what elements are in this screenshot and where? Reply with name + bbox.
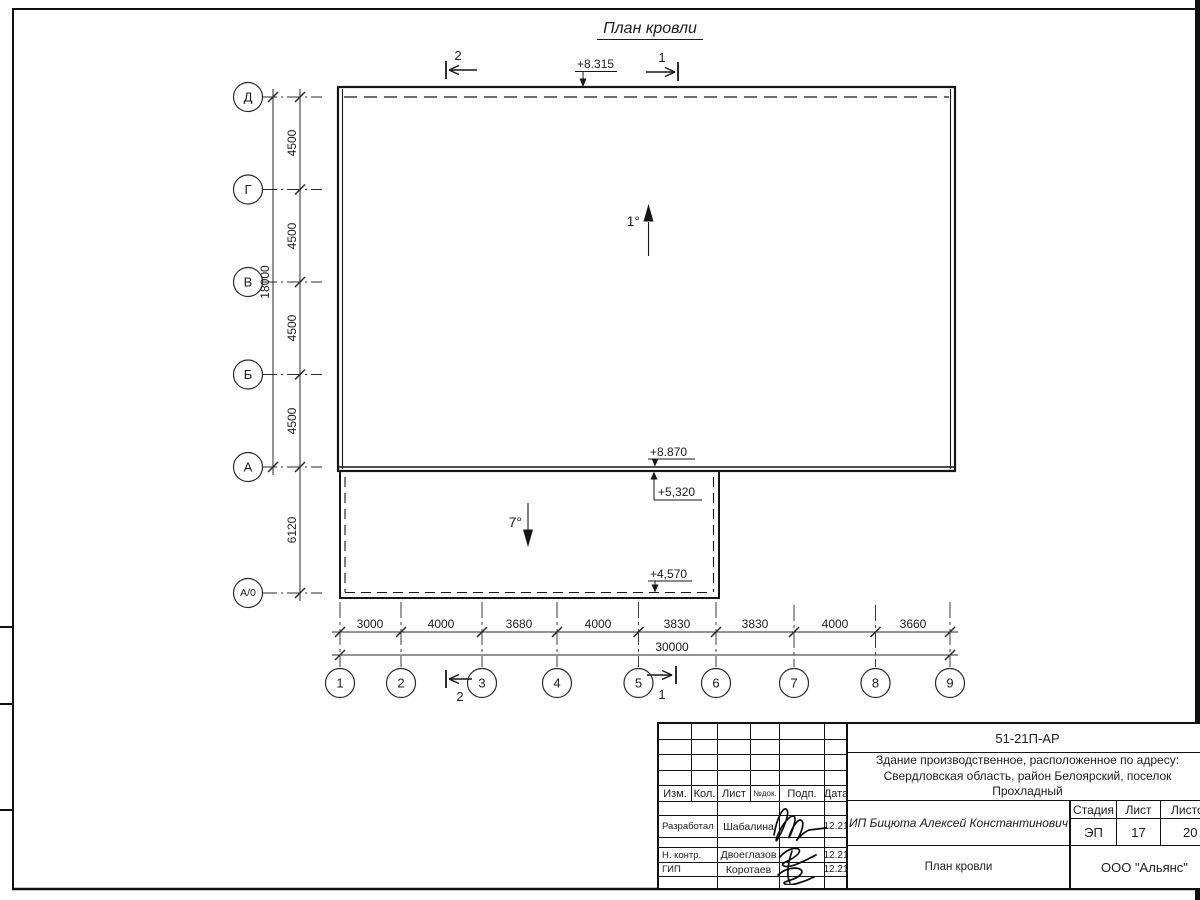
col-header-ndok: №док.: [751, 786, 780, 802]
axis-label: А/0: [240, 587, 256, 599]
stage-value: ЭП: [1069, 818, 1117, 846]
role-gip: ГИП: [659, 863, 718, 877]
sheet-title: План кровли: [846, 845, 1070, 889]
sheets-label: Листов: [1160, 800, 1200, 819]
axis-label: 5: [635, 676, 642, 691]
elevation-annex-top: +5,320: [651, 472, 703, 501]
dim-label: 3660: [900, 617, 927, 631]
slope-value: 7°: [509, 514, 522, 530]
dim-label: 4500: [285, 129, 299, 156]
stage-label: Стадия: [1069, 800, 1117, 819]
dim-label: 3830: [742, 617, 769, 631]
section-mark-2-top: 2: [446, 48, 477, 79]
axis-label: 2: [397, 676, 404, 691]
name-gip: Коротаев: [718, 863, 780, 877]
section-number: 2: [456, 689, 463, 704]
company-name: ООО "Альянс": [1069, 845, 1200, 889]
page-title-text: План кровли: [597, 20, 703, 40]
dim-label: 3830: [664, 617, 691, 631]
axis-label: А: [244, 460, 253, 475]
extension-lines: [340, 602, 950, 667]
elevation-parapet: +8.870: [648, 445, 695, 467]
elevation-marks: +8.315 +8.870 +5,320 +4,570: [575, 57, 702, 593]
doc-code: 51-21П-АР: [846, 722, 1200, 753]
axis-label: 8: [872, 676, 879, 691]
dim-label: 3680: [506, 617, 533, 631]
axis-label: 1: [336, 676, 343, 691]
axis-label: Г: [244, 182, 251, 197]
dim-label-total-height: 18000: [258, 265, 272, 299]
role-ncontrol: Н. контр.: [659, 848, 718, 863]
col-header-podp: Подп.: [780, 786, 825, 802]
sheet-number: 17: [1116, 818, 1161, 846]
slope-arrow-annex: 7°: [509, 503, 533, 547]
axis-grid-bottom: 1 2 3 4 5 6 7 8 9: [326, 669, 965, 698]
section-marks: 2 1 2 1: [446, 48, 678, 704]
axis-grid-left: Д Г В Б А А/0: [234, 83, 323, 608]
sheets-total: 20: [1160, 818, 1200, 846]
role-developer: Разработал: [659, 816, 718, 838]
dim-label: 4000: [585, 617, 612, 631]
signature-cell-gip: [780, 863, 825, 877]
sheet-label: Лист: [1116, 800, 1161, 819]
elevation-value: +4,570: [650, 567, 687, 581]
page-title: План кровли: [540, 20, 760, 38]
axis-label: 3: [478, 676, 485, 691]
elevation-value: +8.315: [577, 57, 614, 71]
dimensions-bottom: 3000 4000 3680 4000 3830 3830 4000 3660 …: [332, 602, 958, 667]
dimensions-left: 18000 4500 4500 4500 4500 6120: [258, 89, 305, 601]
axis-label: 9: [946, 676, 953, 691]
main-roof-outline: [338, 87, 955, 471]
slope-arrow-main: 1°: [627, 204, 654, 256]
elevation-value: +8.870: [650, 445, 687, 459]
client-name: ИП Бицюта Алексей Константинович: [846, 800, 1070, 846]
section-mark-1-top: 1: [646, 50, 678, 81]
drawing-sheet: Д Г В Б А А/0 18000 4500 4500 4500 4500 …: [0, 0, 1200, 900]
axis-label: В: [244, 275, 253, 290]
signature-cell-ncontrol: [780, 848, 825, 863]
dim-label: 4000: [428, 617, 455, 631]
dim-label: 4500: [285, 407, 299, 434]
dim-label-annex: 6120: [285, 516, 299, 543]
axis-label: 6: [712, 676, 719, 691]
elevation-main-roof: +8.315: [575, 57, 617, 87]
signature-cell-developer: [780, 816, 825, 838]
dim-label: 4500: [285, 314, 299, 341]
axis-label: Б: [244, 367, 253, 382]
date-ncontrol: 12.21: [825, 848, 848, 863]
slope-value: 1°: [627, 213, 640, 229]
col-header-izm: Изм.: [659, 786, 692, 802]
name-developer: Шабалина: [718, 816, 780, 838]
titleblock-revision-grid: Изм. Кол. Лист №док. Подп. Дата Разработ…: [657, 722, 848, 889]
object-description: Здание производственное, расположенное п…: [846, 752, 1200, 801]
date-gip: 12.21: [825, 863, 848, 877]
dim-label-total-width: 30000: [655, 640, 689, 654]
name-ncontrol: Двоеглазов: [718, 848, 780, 863]
section-number: 1: [658, 687, 665, 702]
col-header-kol: Кол.: [692, 786, 718, 802]
elevation-annex-eave: +4,570: [648, 567, 692, 593]
date-developer: 12.21: [825, 816, 848, 838]
dim-label: 4000: [822, 617, 849, 631]
col-header-list: Лист: [718, 786, 751, 802]
dim-label: 4500: [285, 222, 299, 249]
dim-label: 3000: [357, 617, 384, 631]
section-number: 1: [658, 50, 665, 65]
axis-label: Д: [244, 90, 253, 105]
axis-label: 4: [553, 676, 560, 691]
section-number: 2: [454, 48, 461, 63]
slope-arrows: 1° 7°: [509, 204, 654, 547]
axis-label: 7: [790, 676, 797, 691]
col-header-data: Дата: [825, 786, 848, 802]
elevation-value: +5,320: [658, 485, 695, 499]
